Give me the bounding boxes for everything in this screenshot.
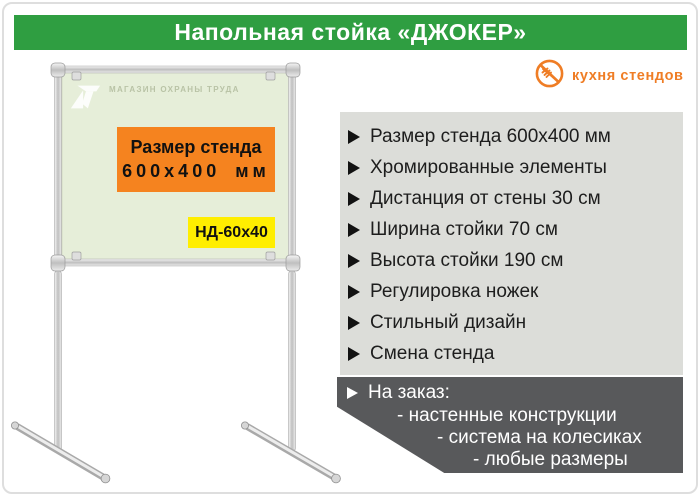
size-label-box: Размер стенда 600х400 мм	[117, 127, 275, 192]
bullet-triangle-icon	[348, 223, 360, 237]
corner-elbow	[286, 63, 300, 77]
bullet-triangle-icon	[348, 130, 360, 144]
bullet-triangle-icon	[348, 192, 360, 206]
feature-text: Высота стойки 190 см	[370, 250, 563, 272]
board-clamp	[266, 252, 275, 260]
feature-item: Стильный дизайн	[348, 307, 677, 338]
crossed-fork-icon	[534, 58, 565, 94]
bullet-triangle-icon	[348, 316, 360, 330]
ad-banner: Напольная стойка «ДЖОКЕР» кухня стендов	[0, 0, 700, 496]
feature-item: Дистанция от стены 30 см	[348, 183, 677, 214]
code-label-text: НД-60х40	[195, 224, 268, 242]
foot-cap	[241, 422, 248, 429]
foot-cap	[332, 474, 341, 483]
bullet-triangle-white-icon	[347, 387, 358, 399]
feature-text: Размер стенда 600х400 мм	[370, 126, 611, 148]
size-label-line2: 600х400 мм	[122, 161, 270, 182]
custom-order-item: - настенные конструкции	[337, 405, 683, 427]
safety-store-logo-icon	[68, 80, 102, 119]
feature-text: Стильный дизайн	[370, 312, 526, 334]
frame-left-tube	[55, 66, 62, 266]
feature-text: Ширина стойки 70 см	[370, 219, 558, 241]
board-watermark: МАГАЗИН ОХРАНЫ ТРУДА	[68, 80, 240, 119]
custom-order-box: На заказ: - настенные конструкции - сист…	[337, 377, 683, 473]
feature-item: Хромированные элементы	[348, 152, 677, 183]
feature-item: Смена стенда	[348, 338, 677, 369]
custom-order-title-row: На заказ:	[337, 381, 683, 405]
frame-bottom-tube	[54, 259, 295, 266]
feature-item: Высота стойки 190 см	[348, 245, 677, 276]
corner-elbow	[286, 255, 300, 271]
brand-logo: кухня стендов	[534, 60, 684, 92]
custom-order-item: - любые размеры	[337, 449, 683, 471]
bullet-triangle-icon	[348, 285, 360, 299]
feature-item: Размер стенда 600х400 мм	[348, 121, 677, 152]
board-clamp	[72, 252, 81, 260]
header-bar: Напольная стойка «ДЖОКЕР»	[14, 15, 687, 50]
bullet-triangle-icon	[348, 347, 360, 361]
features-panel: Размер стенда 600х400 мм Хромированные э…	[340, 112, 683, 375]
frame-right-tube	[289, 66, 296, 266]
bullet-triangle-icon	[348, 161, 360, 175]
brand-name: кухня стендов	[572, 68, 684, 84]
foot-cap	[101, 474, 110, 483]
feature-item: Регулировка ножек	[348, 276, 677, 307]
custom-order-item: - система на колесиках	[337, 427, 683, 449]
corner-elbow	[51, 63, 65, 77]
corner-elbow	[51, 255, 65, 271]
size-label-line1: Размер стенда	[131, 137, 262, 158]
board-clamp	[72, 72, 81, 80]
foot-cap	[11, 422, 18, 429]
bullet-triangle-icon	[348, 254, 360, 268]
watermark-text: МАГАЗИН ОХРАНЫ ТРУДА	[109, 85, 240, 94]
code-label-box: НД-60х40	[188, 217, 275, 248]
feature-text: Смена стенда	[370, 343, 494, 365]
frame-top-tube	[54, 66, 295, 73]
left-post	[55, 271, 62, 451]
page-title: Напольная стойка «ДЖОКЕР»	[174, 19, 526, 46]
feature-text: Хромированные элементы	[370, 157, 607, 179]
feature-text: Дистанция от стены 30 см	[370, 188, 601, 210]
board-clamp	[266, 72, 275, 80]
feature-item: Ширина стойки 70 см	[348, 214, 677, 245]
right-post	[289, 271, 296, 451]
feature-text: Регулировка ножек	[370, 281, 538, 303]
custom-order-title: На заказ:	[368, 382, 450, 404]
